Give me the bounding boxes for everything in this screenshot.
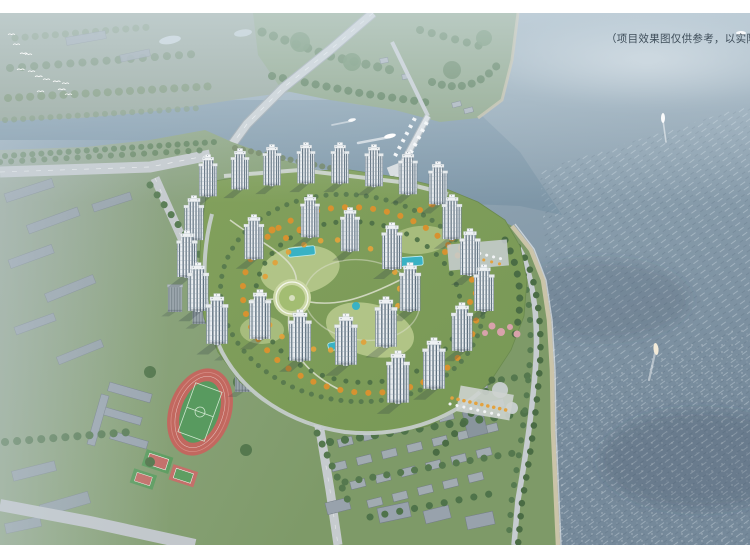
disclaimer-text: （项目效果图仅供参考，以实际交 — [606, 31, 750, 46]
render-canvas: （项目效果图仅供参考，以实际交 — [0, 0, 750, 560]
frame-top — [0, 0, 750, 13]
aerial-render-scene — [0, 0, 750, 560]
central-garden — [273, 279, 311, 317]
frame-bottom — [0, 545, 750, 560]
haze-left — [0, 140, 170, 545]
